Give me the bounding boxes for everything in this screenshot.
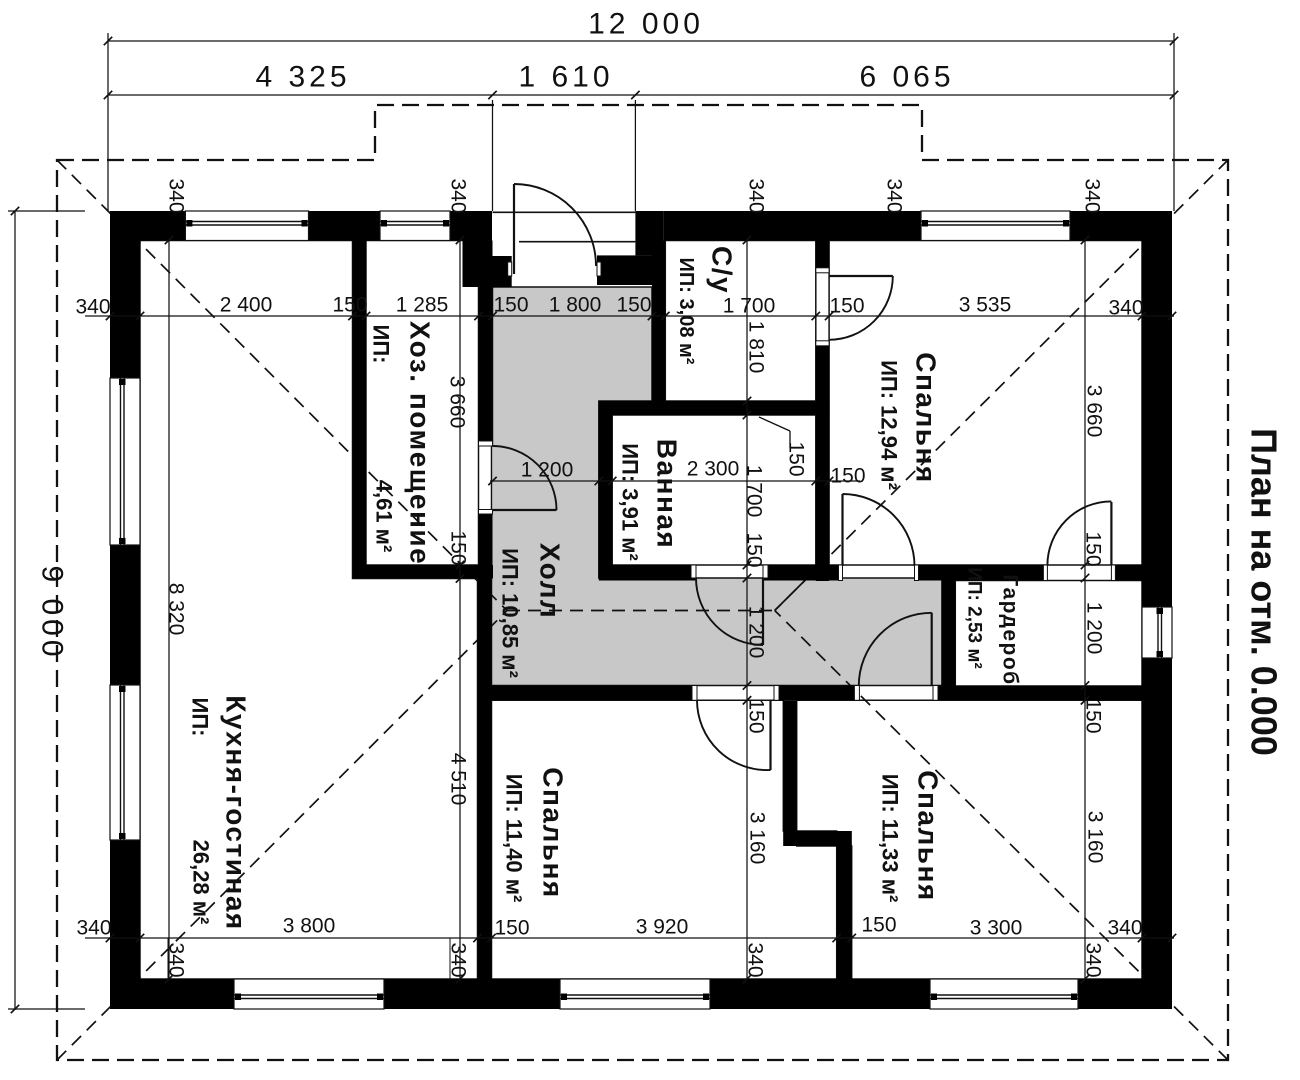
svg-text:340: 340 bbox=[744, 942, 767, 977]
svg-text:1 200: 1 200 bbox=[745, 606, 768, 659]
svg-text:1 810: 1 810 bbox=[745, 321, 768, 374]
svg-text:ИП: 3,08 м²: ИП: 3,08 м² bbox=[675, 258, 697, 365]
svg-text:ИП: 10,85 м²: ИП: 10,85 м² bbox=[498, 548, 523, 678]
svg-text:Гардероб: Гардероб bbox=[999, 574, 1022, 685]
svg-text:150: 150 bbox=[494, 917, 529, 940]
svg-text:26,28 м²: 26,28 м² bbox=[189, 840, 214, 925]
svg-text:1 800: 1 800 bbox=[549, 294, 602, 317]
svg-text:340: 340 bbox=[447, 942, 470, 977]
svg-text:150: 150 bbox=[447, 530, 470, 565]
svg-text:1 700: 1 700 bbox=[723, 295, 776, 318]
svg-text:340: 340 bbox=[1108, 297, 1143, 320]
svg-text:1 200: 1 200 bbox=[1083, 602, 1106, 655]
svg-text:Спальня: Спальня bbox=[911, 352, 942, 483]
svg-text:Ванная: Ванная bbox=[652, 439, 683, 550]
svg-text:340: 340 bbox=[745, 178, 768, 213]
svg-text:1 285: 1 285 bbox=[396, 294, 449, 317]
svg-text:340: 340 bbox=[165, 942, 188, 977]
svg-text:6 065: 6 065 bbox=[859, 61, 954, 94]
svg-text:1 200: 1 200 bbox=[521, 459, 574, 482]
svg-text:340: 340 bbox=[1082, 942, 1105, 977]
svg-text:2 300: 2 300 bbox=[687, 458, 740, 481]
svg-text:3 300: 3 300 bbox=[970, 917, 1023, 940]
svg-text:340: 340 bbox=[1081, 178, 1104, 213]
svg-text:3 660: 3 660 bbox=[1083, 385, 1106, 438]
svg-text:340: 340 bbox=[75, 296, 110, 319]
svg-text:340: 340 bbox=[447, 178, 470, 213]
svg-text:1 610: 1 610 bbox=[518, 61, 613, 94]
svg-text:150: 150 bbox=[829, 295, 864, 318]
svg-text:План на отм. 0.000: План на отм. 0.000 bbox=[1244, 428, 1285, 756]
svg-text:150: 150 bbox=[616, 294, 651, 317]
svg-text:ИП: 3,91 м²: ИП: 3,91 м² bbox=[618, 443, 643, 561]
svg-text:340: 340 bbox=[1107, 917, 1142, 940]
svg-text:150: 150 bbox=[830, 465, 865, 488]
svg-text:Кухня-гостиная: Кухня-гостиная bbox=[221, 695, 252, 931]
svg-text:Холл: Холл bbox=[535, 543, 566, 619]
svg-text:340: 340 bbox=[165, 178, 188, 213]
svg-text:1 700: 1 700 bbox=[743, 465, 766, 518]
svg-text:С/у: С/у bbox=[707, 246, 738, 294]
svg-text:Спальня: Спальня bbox=[538, 767, 569, 898]
svg-text:150: 150 bbox=[493, 294, 528, 317]
svg-text:150: 150 bbox=[785, 441, 808, 476]
svg-text:4 325: 4 325 bbox=[255, 61, 350, 94]
svg-text:150: 150 bbox=[745, 698, 768, 733]
svg-text:150: 150 bbox=[332, 294, 367, 317]
svg-text:4 510: 4 510 bbox=[447, 753, 470, 806]
svg-text:12 000: 12 000 bbox=[588, 8, 704, 41]
svg-text:9 000: 9 000 bbox=[36, 565, 69, 660]
svg-text:150: 150 bbox=[1082, 531, 1105, 566]
svg-text:4,61 м²: 4,61 м² bbox=[372, 480, 397, 553]
svg-text:Спальня: Спальня bbox=[913, 770, 944, 901]
svg-text:ИП: 2,53 м²: ИП: 2,53 м² bbox=[964, 567, 985, 669]
svg-text:150: 150 bbox=[1082, 698, 1105, 733]
svg-text:ИП: 12,94 м²: ИП: 12,94 м² bbox=[877, 360, 902, 490]
svg-text:3 920: 3 920 bbox=[636, 916, 689, 939]
svg-text:ИП:: ИП: bbox=[369, 325, 394, 364]
svg-text:3 160: 3 160 bbox=[746, 812, 769, 865]
svg-text:ИП: 11,40 м²: ИП: 11,40 м² bbox=[502, 774, 527, 903]
svg-text:150: 150 bbox=[861, 914, 896, 937]
svg-text:340: 340 bbox=[76, 917, 111, 940]
svg-text:150: 150 bbox=[743, 532, 766, 567]
svg-text:3 800: 3 800 bbox=[283, 915, 336, 938]
svg-text:3 535: 3 535 bbox=[959, 294, 1012, 317]
svg-text:3 160: 3 160 bbox=[1084, 811, 1107, 864]
svg-text:ИП:: ИП: bbox=[188, 698, 213, 737]
svg-text:340: 340 bbox=[883, 178, 906, 213]
svg-text:2 400: 2 400 bbox=[220, 294, 273, 317]
svg-text:3 660: 3 660 bbox=[446, 376, 469, 429]
svg-text:Хоз. помещение: Хоз. помещение bbox=[405, 321, 436, 565]
svg-text:ИП: 11,33 м²: ИП: 11,33 м² bbox=[878, 774, 903, 903]
svg-text:8 320: 8 320 bbox=[165, 583, 188, 636]
